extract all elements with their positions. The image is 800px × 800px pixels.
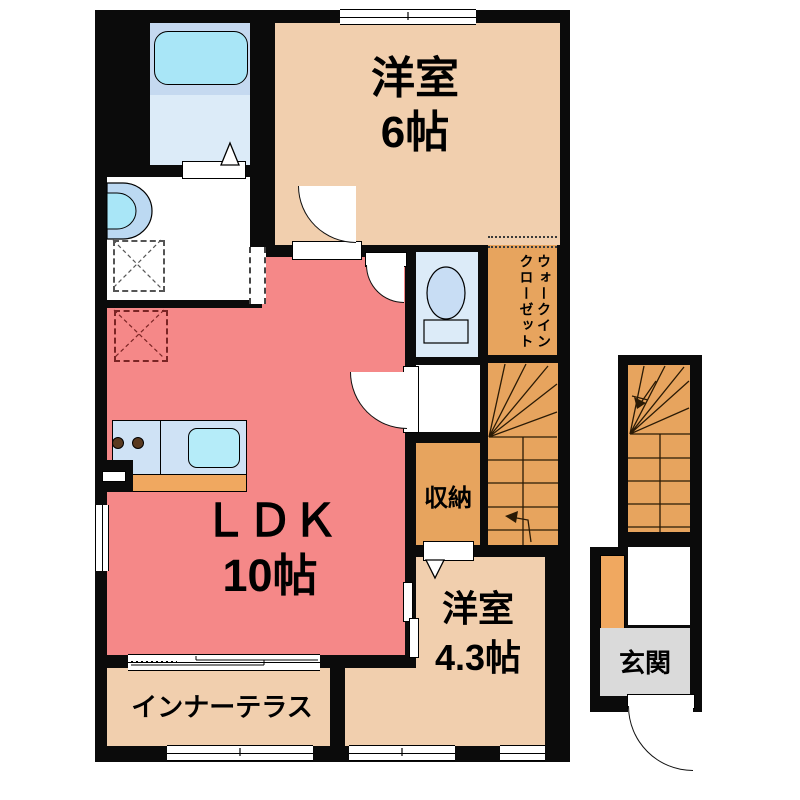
toilet-room (416, 252, 478, 357)
front-door-swing (628, 706, 693, 771)
room-label-bedroom6: 洋室 6帖 (320, 52, 510, 159)
storage-name: 収納 (416, 484, 480, 513)
room-label-ldk: ＬＤＫ 10帖 (155, 494, 385, 604)
room-label-bedroom43: 洋室 4.3帖 (398, 585, 558, 682)
hallway (416, 365, 480, 432)
entrance-name: 玄関 (600, 648, 690, 680)
wic-open-boundary-outer (488, 236, 557, 238)
room-label-entrance: 玄関 (600, 648, 690, 680)
bedroom43-size: 4.3帖 (398, 634, 558, 683)
window-bedroom43-bottom-right (500, 745, 545, 761)
pipe-space-slot (102, 471, 126, 482)
stove-burner-right (132, 437, 144, 449)
terrace-name: インナーテラス (112, 692, 332, 724)
storage-door-opening (423, 541, 474, 561)
sliding-window-ldk-terrace (128, 654, 320, 671)
bathroom-door-opening (182, 161, 246, 179)
room-label-storage: 収納 (416, 484, 480, 513)
window-bedroom6-top (340, 9, 476, 25)
wic-open-boundary-inner (488, 246, 557, 248)
bedroom6-size: 6帖 (320, 106, 510, 160)
refrigerator-space (114, 310, 168, 362)
room-label-terrace: インナーテラス (112, 692, 332, 724)
room-label-wic: ウォークイン クローゼット (496, 253, 552, 351)
bedroom43-name: 洋室 (398, 585, 558, 634)
wic-name-line1: ウォークイン (535, 253, 553, 351)
ldk-size: 10帖 (155, 549, 385, 604)
kitchen-sink (188, 428, 240, 468)
wic-name-line2: クローゼット (517, 253, 535, 351)
bathtub (154, 31, 248, 85)
stove-burner-left (112, 437, 124, 449)
floor-plan: 洋室 6帖 ＬＤＫ 10帖 洋室 4.3帖 インナーテラス 収納 ウォークイン … (0, 0, 800, 800)
window-terrace-bottom (167, 745, 313, 761)
washing-machine-space (113, 240, 165, 292)
entrance-step-strip (600, 555, 625, 630)
stairs-entrance (628, 365, 690, 532)
washroom-pocket-door (249, 247, 266, 304)
window-ldk-left (95, 505, 109, 571)
ldk-name: ＬＤＫ (155, 494, 385, 549)
kitchen-counter-divider (160, 420, 161, 474)
bedroom6-name: 洋室 (320, 52, 510, 106)
entrance-landing (628, 547, 690, 625)
stairs-main (488, 363, 558, 545)
window-bedroom43-bottom-left (349, 745, 455, 761)
bedroom6-door-leaf (292, 241, 362, 260)
